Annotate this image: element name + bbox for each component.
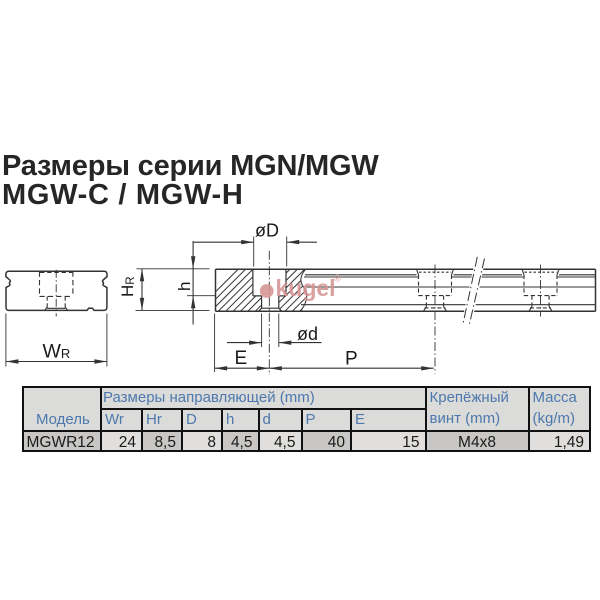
svg-text:WR: WR (43, 341, 71, 363)
svg-text:P: P (345, 349, 358, 370)
svg-text:®: ® (334, 274, 342, 285)
svg-text:HR: HR (118, 276, 137, 297)
svg-text:ød: ød (297, 324, 318, 344)
svg-text:h: h (175, 282, 194, 291)
svg-text:kugel: kugel (276, 275, 336, 301)
svg-text:øD: øD (255, 221, 279, 241)
svg-text:E: E (235, 348, 248, 369)
